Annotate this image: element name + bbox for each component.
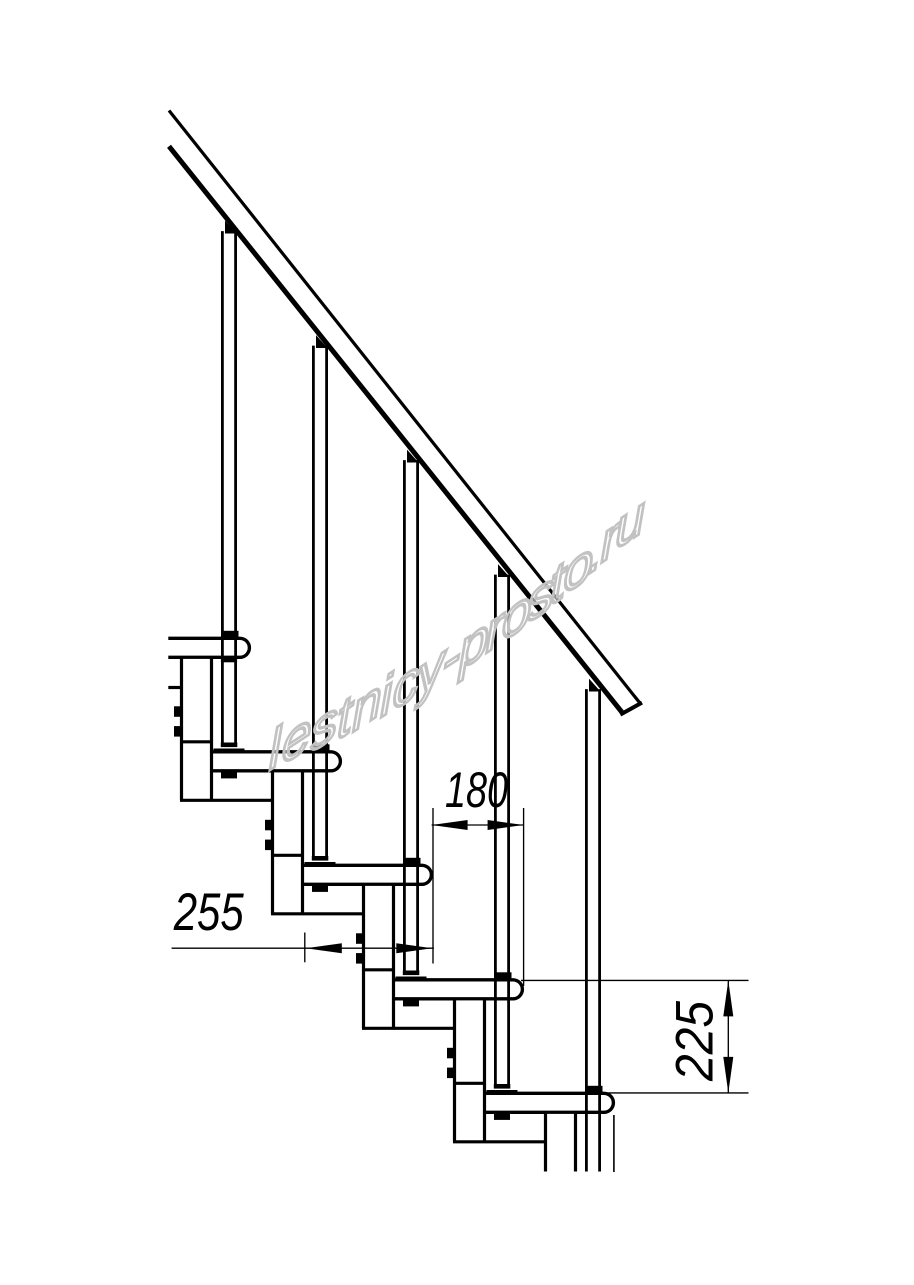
svg-text:180: 180	[445, 762, 508, 818]
svg-text:225: 225	[666, 1001, 725, 1082]
svg-text:255: 255	[173, 883, 244, 942]
